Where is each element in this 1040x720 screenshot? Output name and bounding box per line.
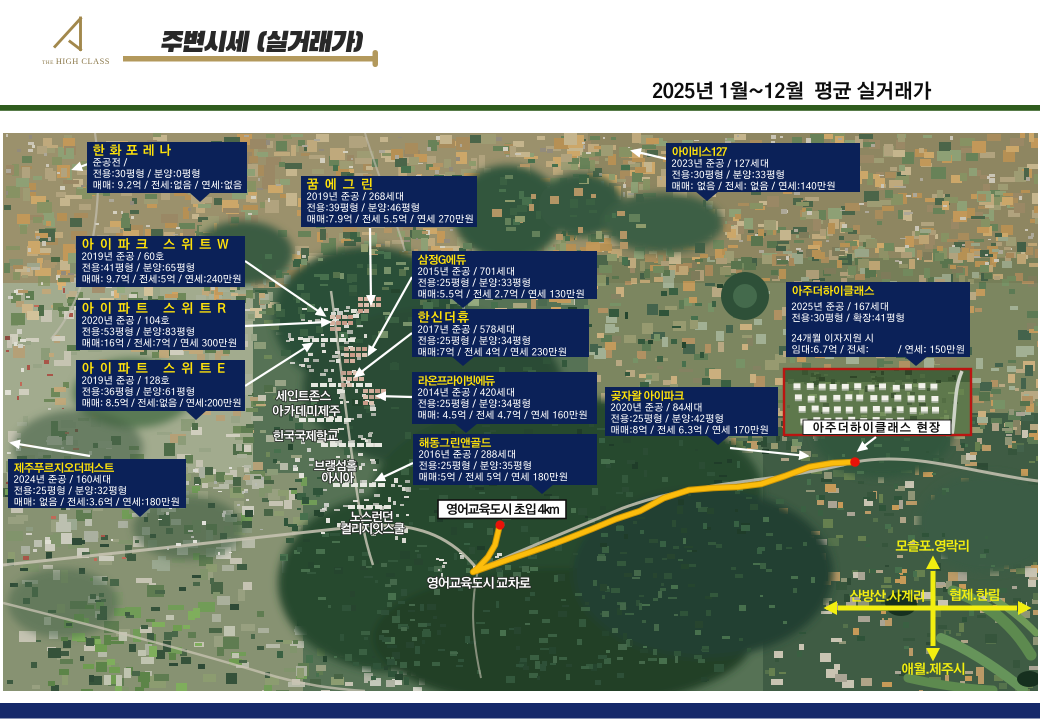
svg-text:THE HIGH CLASS: THE HIGH CLASS: [42, 57, 110, 66]
